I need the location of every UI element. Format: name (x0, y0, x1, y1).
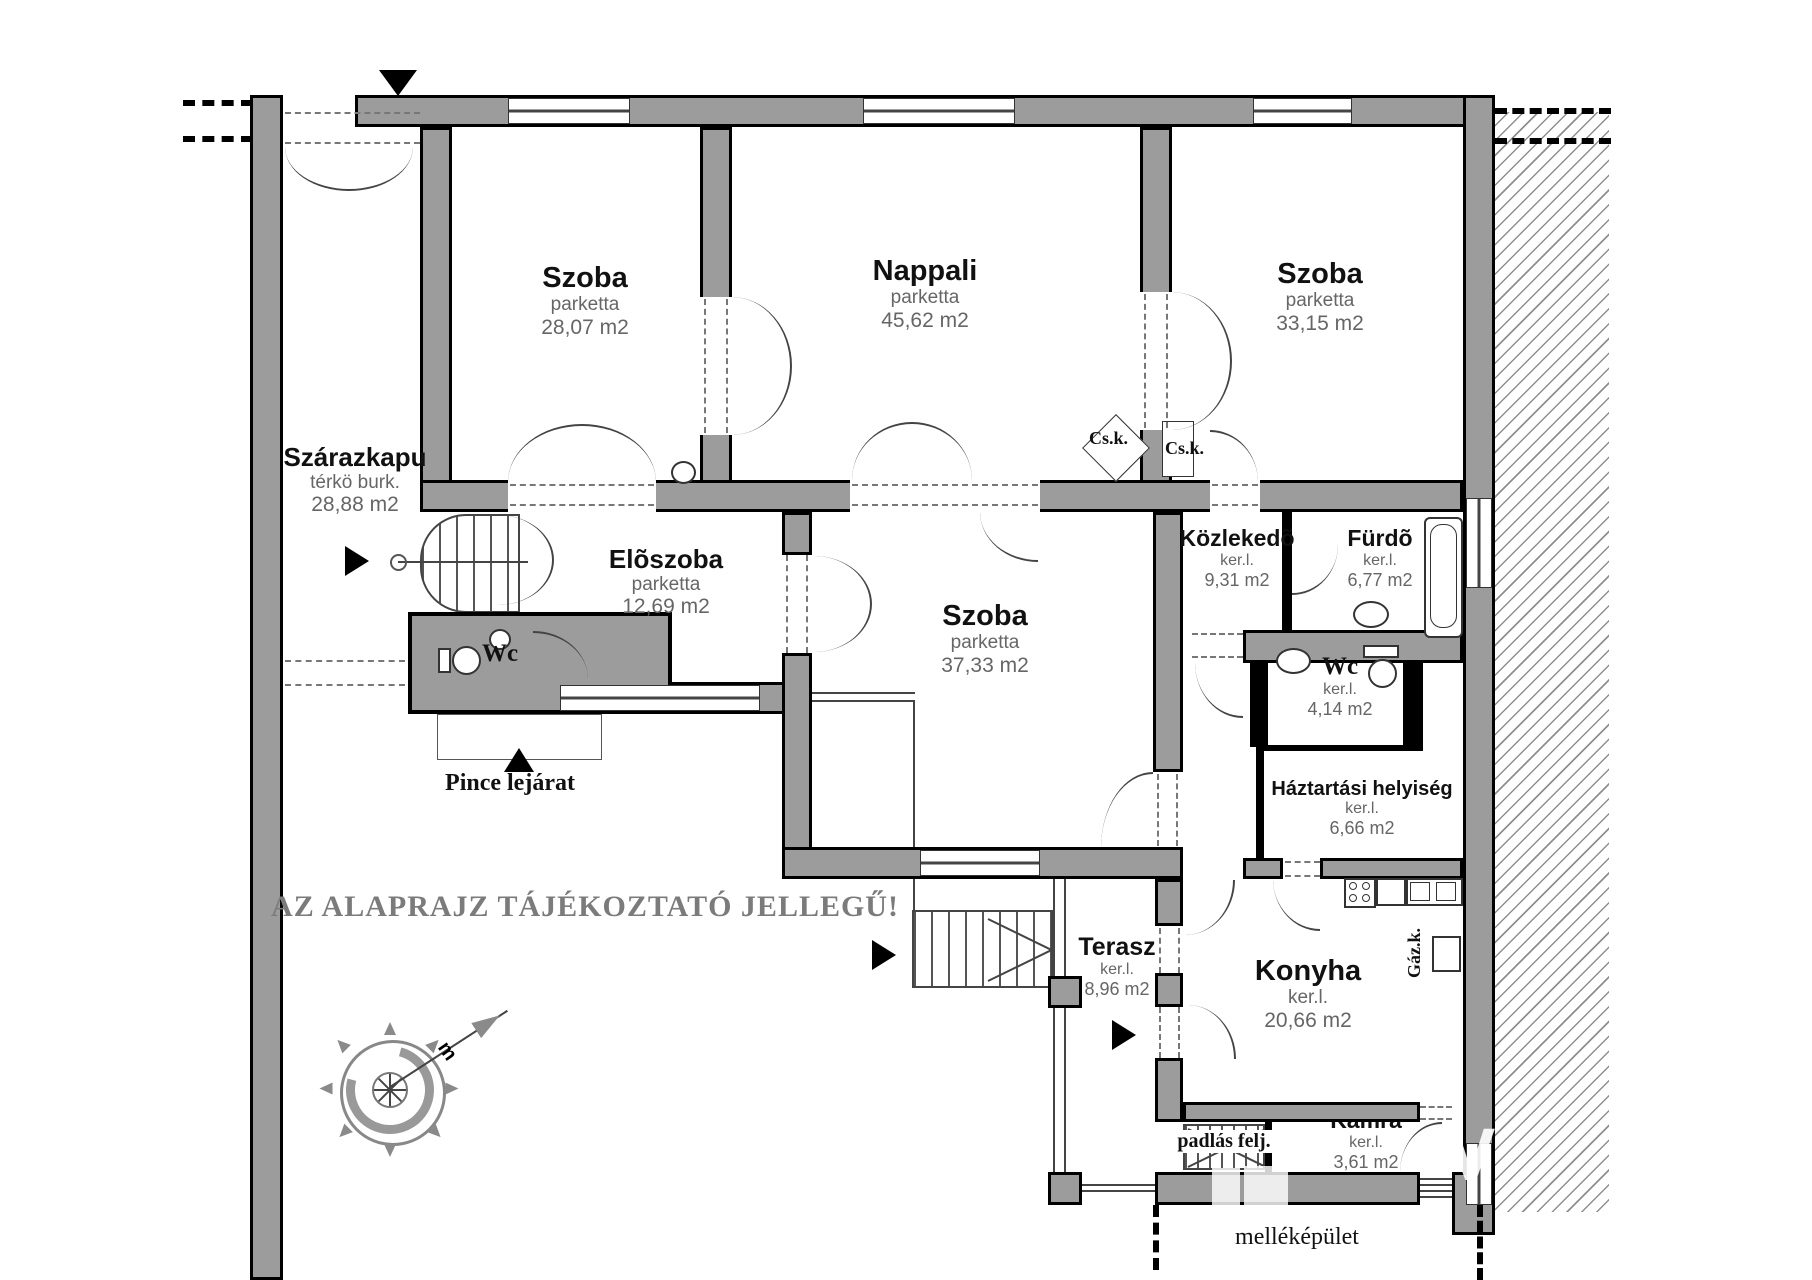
room-name: Elõszoba (609, 545, 723, 574)
gate-dash (285, 142, 420, 144)
stove-burner (1362, 894, 1370, 902)
stove-burner (1349, 894, 1357, 902)
room-floor: ker.l. (1307, 681, 1372, 699)
room-area: 6,77 m2 (1347, 570, 1412, 590)
room-name: Wc (482, 640, 518, 668)
room-label-haztartasi: Háztartási helyiség ker.l. 6,66 m2 (1271, 778, 1452, 838)
window (560, 685, 760, 711)
boundary-dash (1477, 1205, 1483, 1280)
door-arc (1273, 879, 1320, 931)
door-arc (1172, 292, 1232, 361)
window (508, 98, 630, 124)
room-floor: ker.l. (1271, 800, 1452, 818)
door-jamb (1192, 656, 1243, 658)
room-floor: parketta (1276, 290, 1364, 311)
room-label-konyha: Konyha ker.l. 20,66 m2 (1255, 955, 1361, 1032)
wall-haztartasi-left (1256, 745, 1264, 860)
room-area: 28,88 m2 (283, 493, 426, 517)
room-floor: parketta (873, 287, 978, 308)
wall-haztartasi-bottom (1320, 858, 1463, 879)
compass-arrow (384, 1022, 396, 1035)
kitchen-arrow-icon (1112, 1020, 1136, 1050)
room-name: Szárazkapu (283, 443, 426, 472)
boundary-dash (183, 100, 253, 106)
gate-dash (285, 112, 420, 114)
door-jamb (510, 504, 654, 506)
passage-dash (285, 660, 405, 662)
door-jamb (1159, 1007, 1161, 1058)
stove-burner (1362, 882, 1370, 890)
csk-label-1: Cs.k. (1089, 428, 1128, 449)
wall-konyha-bottom (1183, 1102, 1420, 1122)
door-jamb (1157, 774, 1159, 846)
door-jamb (852, 484, 1038, 486)
kitchen-sink-basin (1410, 882, 1430, 901)
room-area: 4,14 m2 (1307, 699, 1372, 719)
room-floor: parketta (941, 632, 1029, 653)
stove-burner (1349, 882, 1357, 890)
toilet-tank (438, 648, 451, 673)
door-arc (814, 604, 872, 652)
room-area: 9,31 m2 (1179, 570, 1294, 590)
door-jamb (1178, 928, 1180, 973)
door-arc (732, 366, 792, 435)
room-area: 3,61 m2 (1330, 1152, 1402, 1172)
door-arc-gate-left (285, 147, 349, 191)
door-jamb (1159, 928, 1161, 973)
compass-north-head (471, 1008, 504, 1038)
compass-arrow (335, 1124, 353, 1142)
door-jamb (1166, 294, 1168, 428)
door-arc (1101, 772, 1153, 848)
stove (1344, 878, 1376, 908)
door-jamb (1176, 774, 1178, 846)
wall-haztartasi-top (1256, 745, 1423, 751)
wall-right (1463, 95, 1495, 1235)
lamp (671, 461, 696, 484)
room-name: Szoba (941, 600, 1029, 632)
room-name: Közlekedõ (1179, 526, 1294, 552)
door-arc (732, 297, 792, 366)
room-area: 33,15 m2 (1276, 312, 1364, 336)
room-area: 20,66 m2 (1255, 1009, 1361, 1033)
compass-arrow (333, 1036, 351, 1054)
door-arc (582, 424, 656, 482)
room-floor: ker.l. (1179, 552, 1294, 570)
pince-lejarat-label: Pince lejárat (445, 770, 575, 797)
door-jamb (1212, 504, 1258, 506)
kitchen-sink-basin (1436, 882, 1456, 901)
room-area: 45,62 m2 (873, 309, 978, 333)
room-area: 28,07 m2 (541, 316, 629, 340)
boundary-dash (183, 136, 253, 142)
terrace-edge (1053, 879, 1055, 978)
pillar-link-line (1082, 1184, 1155, 1186)
watermark: V (1446, 1112, 1495, 1197)
room-floor: ker.l. (1255, 987, 1361, 1008)
csk-label-2: Cs.k. (1165, 438, 1204, 459)
passage-arrow-icon (345, 546, 369, 576)
room-label-szoba3: Szoba parketta 37,33 m2 (941, 600, 1029, 677)
door-jamb (852, 504, 1038, 506)
room-floor: parketta (609, 574, 723, 595)
stairs-rail-end (390, 554, 407, 571)
room-label-furdo: Fürdõ ker.l. 6,77 m2 (1347, 526, 1412, 590)
door-arc (1210, 430, 1258, 482)
sink (1276, 648, 1311, 674)
door-arc (980, 512, 1038, 562)
door-arc-furdo (1292, 545, 1338, 595)
room-floor: ker.l. (1078, 961, 1155, 979)
wall-left-strip (250, 95, 283, 1280)
window (920, 850, 1040, 876)
window (1253, 98, 1352, 124)
door-arc (1195, 663, 1243, 718)
room-floor: térkö burk. (283, 472, 426, 493)
room-name: Fürdõ (1347, 526, 1412, 552)
room-floor: ker.l. (1347, 552, 1412, 570)
window-bathroom (1466, 498, 1492, 588)
door-arc (508, 424, 582, 482)
wall-konyha-left-b (1155, 973, 1183, 1007)
room-area: 8,96 m2 (1078, 979, 1155, 999)
wall-wc2-left (1250, 663, 1268, 747)
door-arc-terasz (1188, 1005, 1236, 1059)
room-name: Szoba (541, 262, 629, 294)
wall-haztartasi-bottom-stub (1243, 858, 1283, 879)
wall-eloszoba-szoba-stub (782, 512, 812, 555)
floor-plan: Kamra ker.l. 3,61 m2 (0, 0, 1812, 1280)
door-arc-kamra (1400, 1122, 1442, 1172)
room-label-wc2: Wc ker.l. 4,14 m2 (1307, 653, 1372, 719)
neighbour-hatch (1495, 112, 1609, 1212)
room-area: 12,69 m2 (609, 595, 723, 619)
terrace-edge (1053, 1008, 1055, 1172)
gas-boiler (1432, 936, 1461, 972)
wall-konyha-left-a (1155, 879, 1183, 926)
room-label-terasz: Terasz ker.l. 8,96 m2 (1078, 933, 1155, 999)
wall-wc2-right (1403, 663, 1423, 747)
garden-stairs (912, 910, 1053, 988)
compass-arrow (446, 1083, 459, 1095)
room-label-szoba2: Szoba parketta 33,15 m2 (1276, 258, 1364, 335)
window (863, 98, 1015, 124)
sink (1353, 601, 1389, 628)
compass-arrow (384, 1144, 396, 1157)
room-area: 6,66 m2 (1271, 818, 1452, 838)
room-name: Terasz (1078, 933, 1155, 961)
door-arc (912, 422, 972, 480)
room-label-wc1: Wc (482, 640, 518, 668)
disclaimer-text: AZ ALAPRAJZ TÁJÉKOZTATÓ JELLEGŰ! (271, 890, 899, 924)
boundary-dash (1153, 1205, 1159, 1270)
room-label-eloszoba: Elõszoba parketta 12,69 m2 (609, 545, 723, 619)
door-arc-konyha (1185, 880, 1235, 935)
room-label-nappali: Nappali parketta 45,62 m2 (873, 255, 978, 332)
terrace-edge (1064, 879, 1066, 978)
room-name: Nappali (873, 255, 978, 287)
boundary-dash (1495, 138, 1611, 144)
bathtub-inner (1430, 524, 1457, 628)
room-floor: parketta (541, 294, 629, 315)
door-jamb (1420, 1106, 1452, 1108)
pillar-terrace-mid (1048, 976, 1082, 1008)
garden-arrow-icon (872, 940, 896, 970)
door-jamb (1212, 484, 1258, 486)
door-jamb (1285, 861, 1320, 863)
counter (1376, 878, 1406, 906)
pillar-terrace-bottom (1048, 1172, 1082, 1205)
door-arc (498, 515, 554, 560)
room-name: Wc (1307, 653, 1372, 681)
door-jamb (726, 299, 728, 433)
compass-arrow (320, 1083, 333, 1095)
door-jamb (1192, 633, 1243, 635)
watermark (1244, 1166, 1288, 1205)
passage-dash (285, 684, 405, 686)
room-name: Háztartási helyiség (1271, 778, 1452, 800)
door-jamb (786, 555, 788, 653)
room-label-szarazkapu: Szárazkapu térkö burk. 28,88 m2 (283, 443, 426, 517)
watermark (1212, 1168, 1240, 1205)
door-arc (852, 422, 912, 480)
door-jamb (1144, 294, 1146, 428)
door-arc (1172, 361, 1232, 430)
wall-konyha-left-c (1155, 1058, 1183, 1122)
fence-line (913, 702, 915, 912)
door-jamb (704, 299, 706, 433)
room-name: Konyha (1255, 955, 1361, 987)
door-arc (498, 560, 554, 605)
toilet-bowl (452, 646, 481, 675)
room-area: 37,33 m2 (941, 654, 1029, 678)
padlas-felj-label: padlás felj. (1174, 1130, 1273, 1153)
door-jamb (1285, 875, 1320, 877)
pillar-link-line (1082, 1190, 1155, 1192)
room-label-szoba1: Szoba parketta 28,07 m2 (541, 262, 629, 339)
room-floor: ker.l. (1330, 1134, 1402, 1152)
door-arc-gate-right (349, 147, 413, 191)
room-name: Szoba (1276, 258, 1364, 290)
door-arc (814, 556, 872, 604)
door-jamb (806, 555, 808, 653)
gazk-label: Gáz.k. (1404, 928, 1425, 978)
room-label-kozlekedo: Közlekedõ ker.l. 9,31 m2 (1179, 526, 1294, 590)
wall-eloszoba-szoba (782, 653, 812, 879)
entry-arrow-icon (379, 70, 417, 96)
terrace-edge (1064, 1008, 1066, 1172)
door-jamb (1178, 1007, 1180, 1058)
door-jamb (510, 484, 654, 486)
cellar-arrow-icon (504, 748, 534, 772)
mellekepulet-label: melléképület (1235, 1224, 1359, 1251)
boundary-dash (1495, 108, 1611, 114)
